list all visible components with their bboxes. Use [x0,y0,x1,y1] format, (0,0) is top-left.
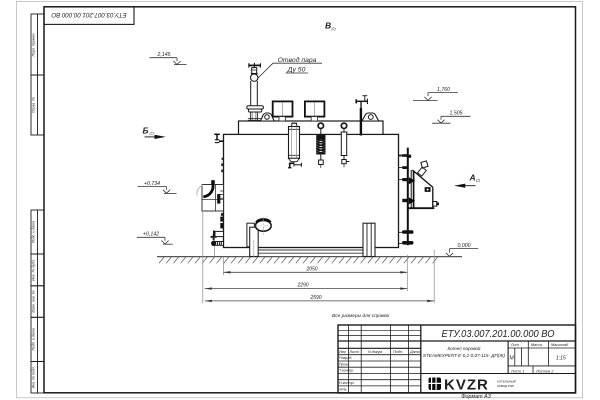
svg-text:Все размеры для справок: Все размеры для справок [332,313,390,319]
svg-text:(2): (2) [476,179,480,183]
svg-text:Инв. № дубл.: Инв. № дубл. [32,259,36,281]
svg-text:Подп.: Подп. [393,350,403,354]
svg-text:STEAMEXPERT-Е-0,2-0,07-115- ДП: STEAMEXPERT-Е-0,2-0,07-115- ДП(Ж) [423,353,506,358]
svg-text:KVZR: KVZR [444,377,489,394]
svg-text:ЕТУ.03.007.201.00.000 ВО: ЕТУ.03.007.201.00.000 ВО [51,11,126,18]
svg-text:2050: 2050 [305,266,317,272]
svg-text:Подп. и дата: Подп. и дата [32,221,36,244]
svg-text:Дата: Дата [409,350,420,354]
svg-text:КОТЕЛЬНЫЙ: КОТЕЛЬНЫЙ [497,380,516,384]
svg-text:Утв.: Утв. [339,387,347,391]
svg-text:Справ. №: Справ. № [32,97,36,113]
svg-text:Отвод пара: Отвод пара [278,56,317,64]
svg-text:Перв. примен.: Перв. примен. [32,33,36,57]
svg-text:2,145: 2,145 [157,52,171,58]
svg-text:Пров.: Пров. [339,362,349,366]
svg-text:Листов 2: Листов 2 [535,369,554,374]
svg-text:В: В [325,21,331,31]
svg-text:1,760: 1,760 [437,87,450,93]
svg-text:+0,142: +0,142 [143,232,159,238]
svg-text:Масштаб: Масштаб [551,343,569,347]
svg-text:А: А [469,173,476,183]
svg-text:Котел паровой: Котел паровой [448,345,481,351]
svg-text:Лист: Лист [349,350,360,354]
svg-text:Разраб.: Разраб. [339,356,352,360]
svg-text:(2): (2) [150,132,154,136]
svg-text:+0,734: +0,734 [144,181,160,187]
svg-text:Инв. № подл.: Инв. № подл. [32,366,36,388]
svg-text:Изм: Изм [339,350,346,354]
svg-text:Т.контр.: Т.контр. [339,369,354,373]
svg-text:N докум.: N докум. [368,350,383,354]
svg-text:0,000: 0,000 [458,243,471,249]
svg-text:1:15: 1:15 [556,356,566,362]
svg-text:1,505: 1,505 [450,111,463,117]
svg-text:Б: Б [143,126,149,136]
svg-text:2590: 2590 [309,295,321,301]
svg-text:Ду 50: Ду 50 [287,66,306,73]
svg-text:Н.контр.: Н.контр. [339,381,355,385]
svg-text:Формат А3: Формат А3 [461,394,491,400]
svg-text:Лит.: Лит. [510,343,520,347]
svg-text:Взам. инв. №: Взам. инв. № [32,290,36,312]
svg-text:Подп. и дата: Подп. и дата [32,328,36,351]
svg-text:(2): (2) [332,27,336,31]
svg-text:Масса: Масса [531,343,542,347]
svg-text:Лист 1: Лист 1 [510,369,524,374]
svg-text:ЕТУ.03.007.201.00.000 ВО: ЕТУ.03.007.201.00.000 ВО [442,329,555,340]
svg-text:2290: 2290 [296,283,308,289]
svg-text:ЗАВОД РЭП: ЗАВОД РЭП [497,384,514,388]
